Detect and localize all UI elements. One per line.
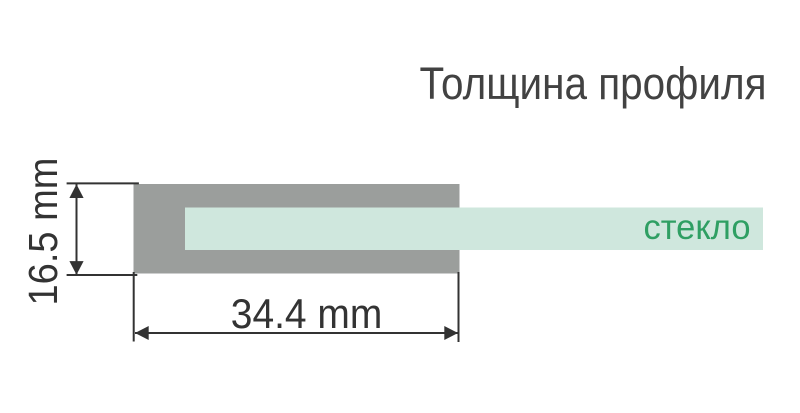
svg-text:стекло: стекло [644, 208, 751, 247]
svg-text:34.4 mm: 34.4 mm [231, 290, 382, 337]
svg-text:16.5 mm: 16.5 mm [20, 158, 66, 306]
svg-text:Толщина профиля: Толщина профиля [420, 58, 767, 109]
